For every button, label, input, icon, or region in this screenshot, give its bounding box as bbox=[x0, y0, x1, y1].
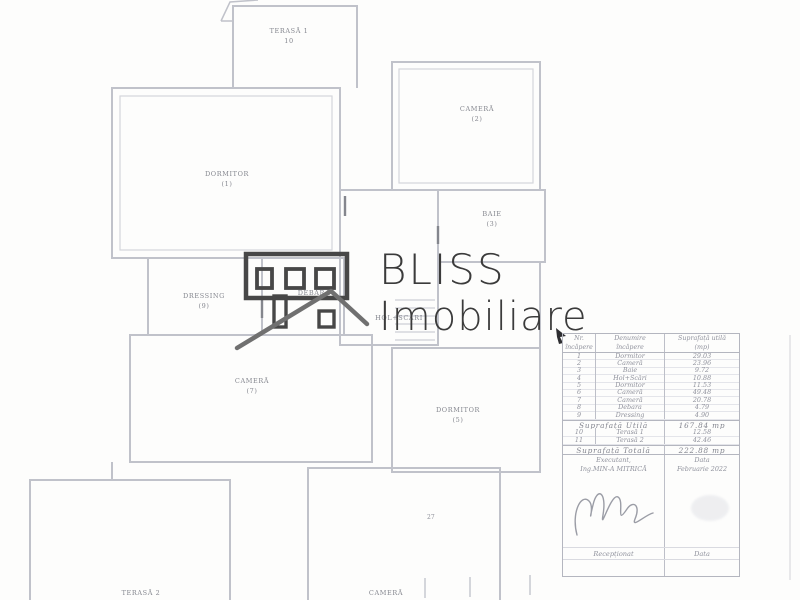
dimension-label: 27 bbox=[427, 514, 435, 521]
executant-label: Executant, bbox=[596, 456, 631, 464]
room-label-camera-jos: CAMERĂ bbox=[369, 588, 403, 598]
signature-row bbox=[563, 475, 739, 547]
room-label-dormitor-5: DORMITOR(5) bbox=[436, 405, 480, 425]
executant-date-value: Februarie 2022 bbox=[677, 465, 727, 473]
logo-text: BLISS Imobiliare bbox=[379, 248, 588, 338]
room-label-camera-2: CAMERĂ(2) bbox=[460, 104, 494, 124]
table-row: 9Dressing4.90 bbox=[563, 412, 739, 419]
signature-scribble bbox=[563, 475, 664, 547]
room-label-camera-7: CAMERĂ(7) bbox=[235, 376, 269, 396]
total-totala-label: Suprafață Totală bbox=[563, 446, 664, 454]
stamp-cell bbox=[664, 475, 739, 547]
signature-cell bbox=[563, 475, 664, 547]
total-totala-value: 222.88 mp bbox=[664, 446, 739, 454]
room-label-debara: DEBARA bbox=[298, 288, 331, 298]
logo-brand-name: BLISS bbox=[379, 248, 588, 292]
logo-brand-sub: Imobiliare bbox=[379, 296, 588, 338]
executant-row: Executant, Ing.MIN-A MITRICĂ Data Februa… bbox=[563, 454, 739, 475]
area-table: Nr.încăpere Denumireîncăpere Suprafață u… bbox=[562, 333, 740, 577]
total-totala-row: Suprafață Totală 222.88 mp bbox=[563, 445, 739, 454]
table-footer-space bbox=[563, 559, 739, 576]
room-label-dormitor-1: DORMITOR(1) bbox=[205, 169, 249, 189]
room-label-terasa-2: TERASĂ 2 bbox=[122, 588, 161, 598]
room-label-terasa-1: TERASĂ 110 bbox=[270, 26, 309, 46]
stamp-smudge bbox=[691, 495, 729, 521]
table-header: Nr.încăpere Denumireîncăpere Suprafață u… bbox=[563, 334, 739, 353]
table-row: 11Terasă 242.46 bbox=[563, 437, 739, 445]
reception-row: Recepționat Data bbox=[563, 547, 739, 559]
room-label-dressing-9: DRESSING(9) bbox=[183, 291, 225, 311]
reception-date-label: Data bbox=[664, 548, 739, 559]
executant-name: Ing.MIN-A MITRICĂ bbox=[580, 465, 646, 473]
executant-date-label: Data bbox=[694, 456, 709, 464]
room-label-baie-3: BAIE(3) bbox=[482, 209, 501, 229]
reception-label: Recepționat bbox=[563, 548, 664, 559]
